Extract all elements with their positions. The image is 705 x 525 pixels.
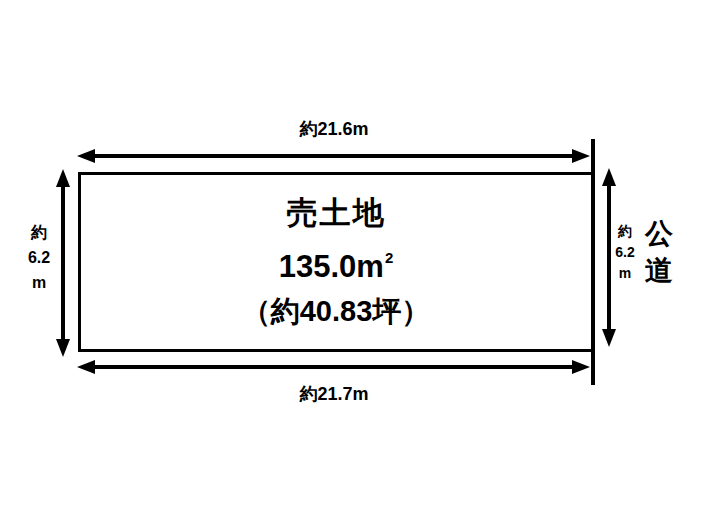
top-width-label: 約21.6m xyxy=(78,118,590,140)
arrow-down-head-icon xyxy=(602,329,616,347)
plot-area-superscript: 2 xyxy=(385,249,393,266)
right-depth-label-line1: 約 xyxy=(611,221,639,242)
plot-area-value: 135.0 xyxy=(279,249,357,284)
arrow-shaft xyxy=(61,182,65,344)
road-label-char1: 公 xyxy=(639,215,679,252)
plot-area-tsubo: （約40.83坪） xyxy=(81,289,591,334)
plot-area-unit: m xyxy=(356,249,384,284)
left-depth-label-line2: 6.2 xyxy=(22,245,56,270)
left-depth-arrow xyxy=(56,169,70,357)
left-depth-label: 約 6.2 m xyxy=(22,220,56,295)
left-depth-label-line3: m xyxy=(22,270,56,295)
road-boundary-line xyxy=(591,139,595,385)
right-depth-label-line3: m xyxy=(611,263,639,284)
top-width-arrow xyxy=(77,149,590,163)
plot-rectangle: 売土地 135.0m2 （約40.83坪） xyxy=(78,172,594,352)
left-depth-label-line1: 約 xyxy=(22,220,56,245)
road-label-char2: 道 xyxy=(639,252,679,289)
bottom-width-label: 約21.7m xyxy=(78,383,590,405)
plot-area: 135.0m2 xyxy=(81,235,591,289)
plot-title: 売土地 xyxy=(81,190,591,235)
arrow-shaft xyxy=(90,365,577,369)
road-label: 公 道 xyxy=(639,215,679,289)
right-depth-label: 約 6.2 m xyxy=(611,221,639,284)
arrow-right-head-icon xyxy=(572,360,590,374)
arrow-shaft xyxy=(90,154,577,158)
arrow-right-head-icon xyxy=(572,149,590,163)
right-depth-label-line2: 6.2 xyxy=(611,242,639,263)
arrow-down-head-icon xyxy=(56,339,70,357)
plot-text-block: 売土地 135.0m2 （約40.83坪） xyxy=(81,190,591,334)
land-plot-diagram: 約21.6m 売土地 135.0m2 （約40.83坪） 約21.7m 約 6.… xyxy=(0,0,705,525)
bottom-width-arrow xyxy=(77,360,590,374)
